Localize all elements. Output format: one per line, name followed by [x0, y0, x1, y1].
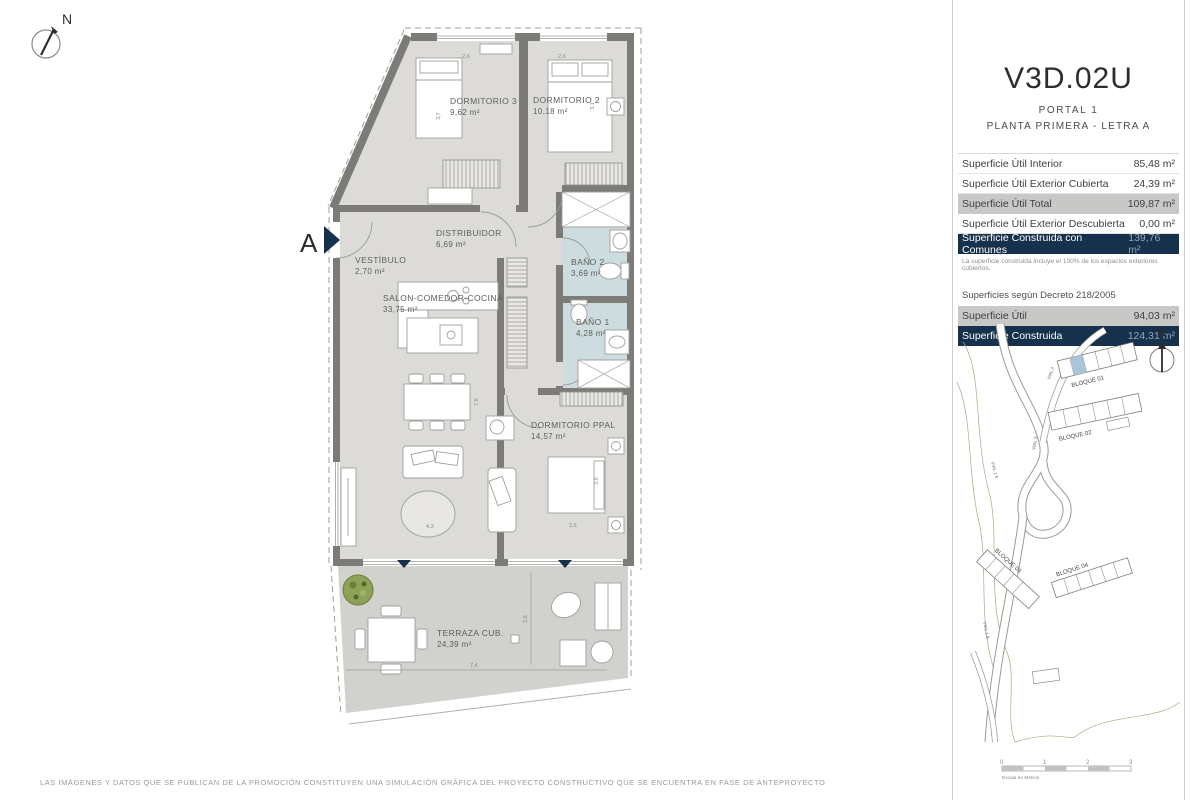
room-label: SALON-COMEDOR-COCINA — [383, 293, 503, 303]
dim-label: 2,6 — [569, 523, 577, 529]
surface-value: 0,00 m² — [1139, 218, 1175, 230]
room-area: 2,70 m² — [355, 267, 385, 276]
site-north-arrow: N — [1150, 325, 1174, 372]
surface-label: Superficie Útil Total — [962, 198, 1052, 210]
scale-caption: Escala en Metros — [1002, 775, 1040, 781]
scale-bar: 0 1 2 3 Escala en Metros — [998, 756, 1138, 784]
road-label: VIAL 1 A — [990, 461, 999, 479]
site-north-label: N — [1157, 325, 1166, 339]
terrace-table — [368, 618, 415, 662]
rug — [401, 491, 455, 537]
table-row-highlight-navy: Superficie Construida con Comunes 139,76… — [958, 234, 1179, 254]
portal-subtitle: PORTAL 1 — [958, 105, 1179, 116]
scale-tick: 1 — [1043, 760, 1047, 766]
bloque-label: BLOQUE 01 — [1071, 375, 1105, 389]
surface-table: Superficie Útil Interior 85,48 m² Superf… — [958, 153, 1179, 272]
room-label: DORMITORIO 3 — [450, 96, 517, 106]
bloque-01: BLOQUE 01 — [1057, 342, 1140, 391]
unit-code-title: V3D.02U — [958, 62, 1179, 96]
bloque-04: BLOQUE 04 — [1049, 550, 1133, 598]
scale-tick: 2 — [1086, 760, 1090, 766]
room-label: BAÑO 1 — [576, 317, 610, 327]
road-label: VIAL 2 — [1046, 366, 1055, 381]
decreto-heading: Superficies según Decreto 218/2005 — [962, 290, 1175, 301]
table-row: Superficie Útil Exterior Cubierta 24,39 … — [958, 174, 1179, 194]
room-label: DORMITORIO PPAL — [531, 420, 616, 430]
dim-label: 3,9 — [594, 477, 600, 485]
scale-tick: 0 — [1000, 760, 1004, 766]
site-building — [1032, 668, 1059, 684]
room-label: TERRAZA CUB. — [437, 628, 504, 638]
surface-label: Superficie Útil Exterior Descubierta — [962, 218, 1125, 230]
scale-tick: 3 — [1129, 760, 1133, 766]
surface-value: 24,39 m² — [1134, 178, 1175, 190]
dim-label: 2,6 — [462, 54, 470, 60]
room-label: VESTÍBULO — [355, 255, 406, 265]
site-plan-map: BLOQUE 01 BLOQUE 02 BLOQUE 03 BLOQUE 04 … — [955, 322, 1183, 747]
room-area: 3,69 m² — [571, 269, 601, 278]
dining-table — [404, 384, 470, 420]
dim-label: 7,4 — [470, 663, 478, 669]
section-marker-label: A — [300, 228, 318, 258]
floor-plan: A — [0, 0, 950, 800]
terrain-contours — [957, 342, 1180, 742]
road-label: VIAL 1 B — [982, 621, 991, 639]
surface-value: 85,48 m² — [1134, 158, 1175, 170]
dim-label: 4,3 — [426, 524, 434, 530]
table-row: Superficie Útil Interior 85,48 m² — [958, 153, 1179, 174]
road-label: VIAL 3 — [1031, 436, 1038, 450]
dim-label: 3,7 — [436, 112, 442, 120]
surface-note: La superficie construida incluye el 100%… — [962, 258, 1175, 272]
room-area: 10,18 m² — [533, 107, 568, 116]
surface-label: Superficie Útil Exterior Cubierta — [962, 178, 1108, 190]
surface-value: 94,03 m² — [1134, 310, 1175, 322]
surface-label: Superficie Útil — [962, 310, 1027, 322]
bloque-02: BLOQUE 02 — [1048, 393, 1145, 443]
room-area: 33,75 m² — [383, 305, 418, 314]
plant — [343, 575, 373, 605]
surface-value: 139,76 m² — [1128, 232, 1175, 256]
room-label: DISTRIBUIDOR — [436, 228, 502, 238]
room-area: 9,62 m² — [450, 108, 480, 117]
bloque-label: BLOQUE 02 — [1058, 430, 1093, 443]
room-area: 6,69 m² — [436, 240, 466, 249]
table-row-highlight-gray: Superficie Útil Total 109,87 m² — [958, 194, 1179, 214]
surface-label: Superficie Construida con Comunes — [962, 232, 1128, 256]
scale-ticks: 0 1 2 3 — [1000, 760, 1133, 766]
room-area: 4,28 m² — [576, 329, 606, 338]
disclaimer-text: LAS IMÁGENES Y DATOS QUE SE PUBLICAN DE … — [40, 778, 825, 787]
dim-label: 7,8 — [474, 398, 480, 406]
dim-label: 3,1 — [590, 102, 596, 110]
room-area: 24,39 m² — [437, 640, 472, 649]
room-area: 14,57 m² — [531, 432, 566, 441]
room-label: BAÑO 2 — [571, 257, 605, 267]
tv-unit — [341, 468, 356, 546]
dim-label: 2,6 — [558, 54, 566, 60]
surface-value: 109,87 m² — [1128, 198, 1175, 210]
dim-label: 2,8 — [523, 615, 529, 623]
surface-label: Superficie Útil Interior — [962, 158, 1062, 170]
floor-letter-subtitle: PLANTA PRIMERA - LETRA A — [958, 121, 1179, 132]
